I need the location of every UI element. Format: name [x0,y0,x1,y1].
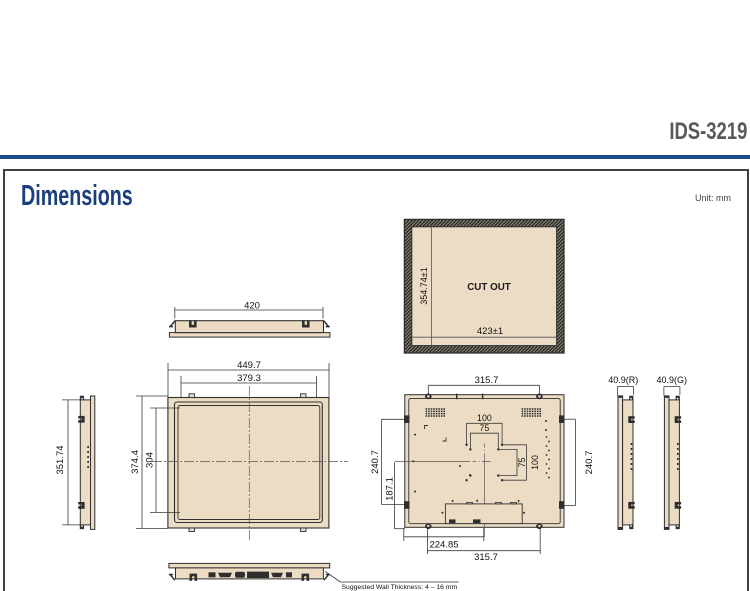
svg-text:449.7: 449.7 [237,360,261,371]
svg-text:315.7: 315.7 [474,552,498,563]
svg-text:100: 100 [477,413,492,423]
svg-text:Suggested Wall Thickness: 4 –: Suggested Wall Thickness: 4 – 16 mm [342,584,458,591]
svg-text:374.4: 374.4 [130,450,141,474]
svg-text:420: 420 [244,301,260,312]
svg-text:40.9(R): 40.9(R) [608,375,638,385]
svg-text:75: 75 [517,458,527,468]
svg-text:CUT OUT: CUT OUT [467,282,511,293]
svg-text:100: 100 [530,455,540,470]
svg-text:315.7: 315.7 [475,375,499,386]
svg-text:75: 75 [480,423,490,433]
svg-text:351.74: 351.74 [55,445,66,474]
svg-text:40.9(G): 40.9(G) [656,375,687,385]
svg-text:187.1: 187.1 [385,477,396,501]
svg-text:379.3: 379.3 [237,373,261,384]
svg-text:304: 304 [145,452,156,468]
svg-text:240.7: 240.7 [370,450,381,474]
svg-text:354.74±1: 354.74±1 [419,267,429,304]
svg-text:423±1: 423±1 [477,326,503,337]
svg-text:240.7: 240.7 [584,451,595,475]
svg-text:224.85: 224.85 [429,540,458,551]
